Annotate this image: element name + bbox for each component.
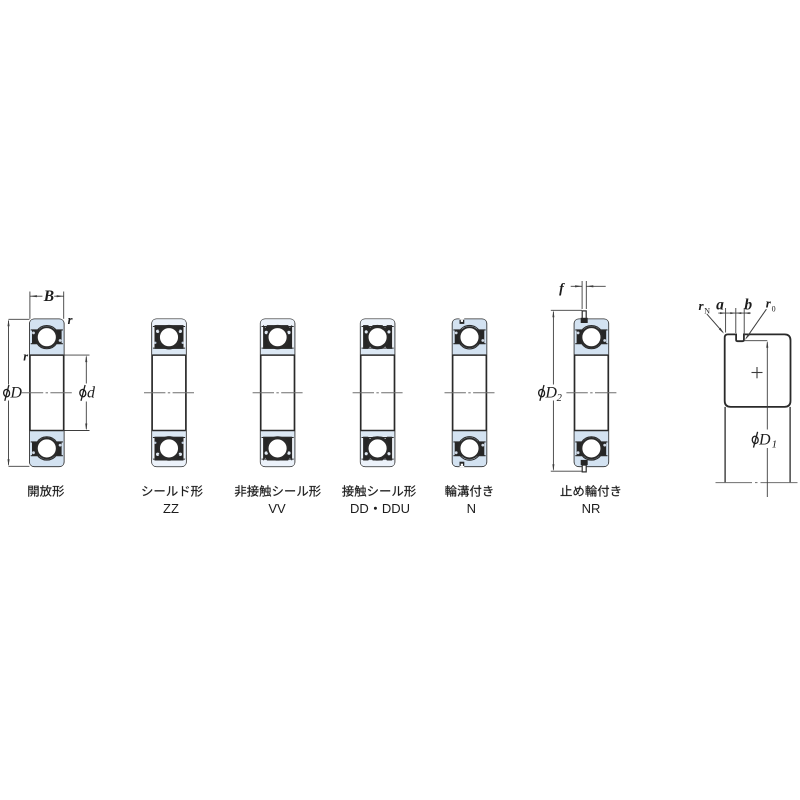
svg-text:f: f: [559, 281, 565, 296]
svg-text:DD: DD: [350, 501, 369, 516]
svg-text:r: r: [23, 349, 28, 363]
svg-text:D: D: [758, 431, 771, 448]
svg-text:NR: NR: [582, 501, 601, 516]
svg-text:N: N: [704, 307, 710, 316]
svg-text:b: b: [744, 297, 752, 314]
svg-text:VV: VV: [268, 501, 286, 516]
svg-text:a: a: [716, 297, 724, 314]
svg-text:1: 1: [772, 439, 778, 451]
svg-text:D: D: [544, 385, 557, 402]
svg-text:D: D: [9, 385, 22, 402]
svg-text:B: B: [43, 288, 54, 305]
svg-text:DDU: DDU: [382, 501, 410, 516]
svg-text:2: 2: [557, 393, 563, 404]
svg-text:N: N: [467, 501, 476, 516]
svg-text:ZZ: ZZ: [163, 501, 179, 516]
svg-text:d: d: [87, 385, 96, 402]
svg-text:0: 0: [772, 304, 776, 313]
svg-text:r: r: [68, 313, 73, 327]
